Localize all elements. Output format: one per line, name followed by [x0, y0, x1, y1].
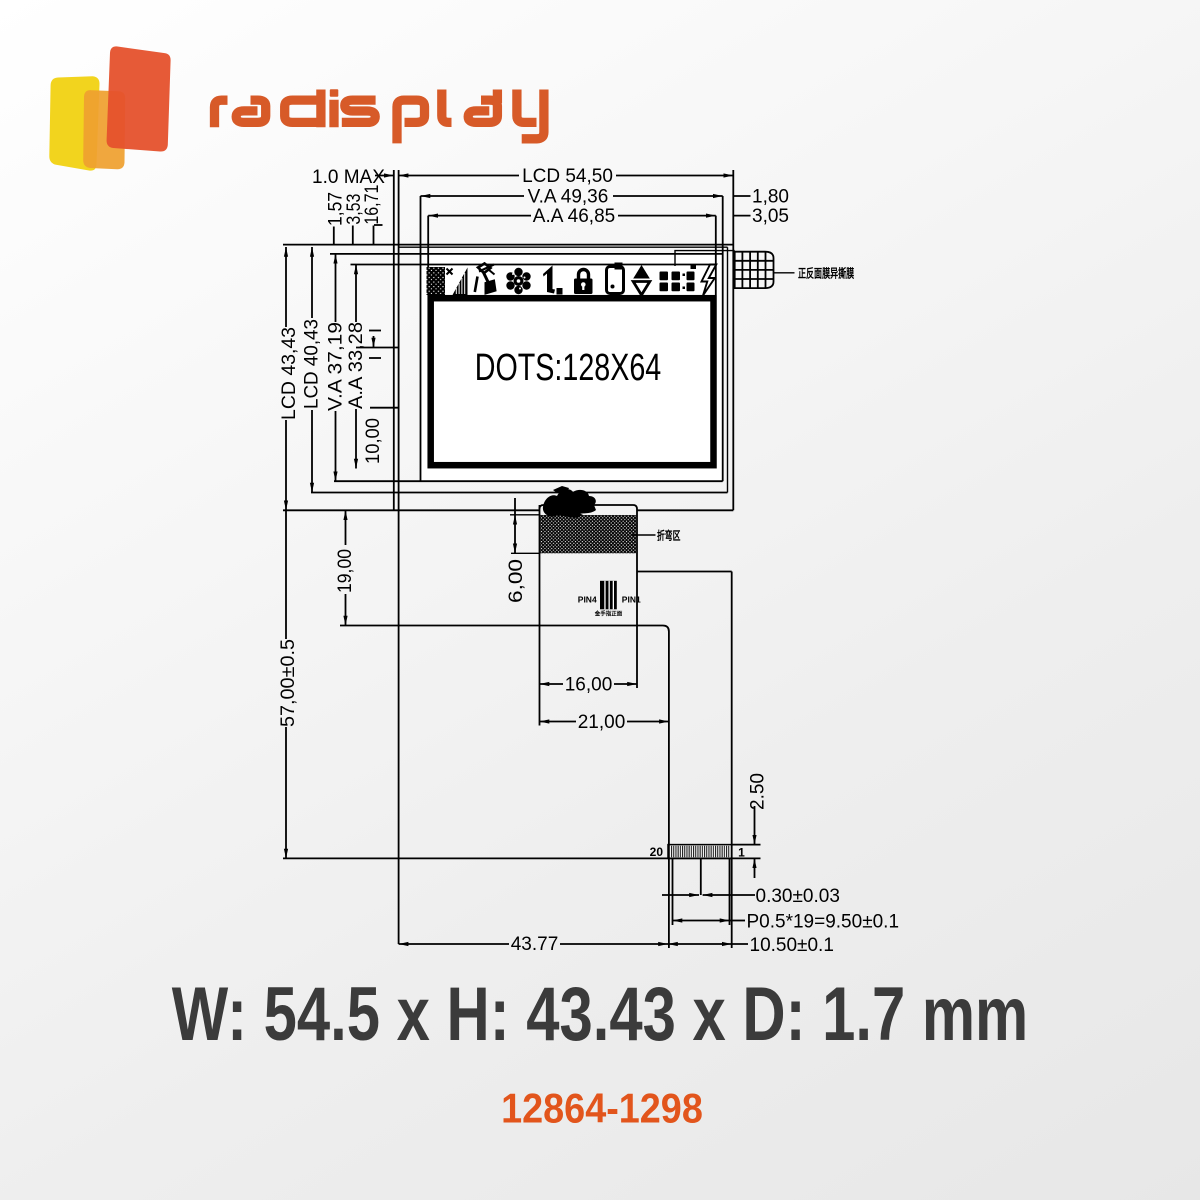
svg-text:LCD 54,50: LCD 54,50: [522, 166, 613, 187]
svg-text:LCD 40,43: LCD 40,43: [302, 319, 323, 409]
svg-text:V.A 49,36: V.A 49,36: [528, 187, 609, 208]
svg-text:P0.5*19=9.50±0.1: P0.5*19=9.50±0.1: [747, 912, 900, 933]
svg-text:3,05: 3,05: [752, 206, 789, 227]
svg-text:21,00: 21,00: [578, 712, 626, 733]
svg-text:10.50±0.1: 10.50±0.1: [750, 935, 834, 956]
svg-text:金手指正面: 金手指正面: [594, 610, 623, 618]
svg-text:折弯区: 折弯区: [657, 528, 681, 543]
svg-text:16,71: 16,71: [362, 185, 383, 225]
svg-text:LCD 43,43: LCD 43,43: [279, 327, 300, 420]
svg-text:A.A 33,28: A.A 33,28: [346, 322, 367, 409]
svg-text:1,57: 1,57: [325, 192, 346, 226]
svg-text:正反面膜异撕膜: 正反面膜异撕膜: [798, 266, 855, 281]
svg-text:0.30±0.03: 0.30±0.03: [756, 886, 840, 907]
svg-text:PIN4: PIN4: [578, 595, 597, 605]
svg-text:PIN1: PIN1: [622, 595, 641, 605]
svg-text:20: 20: [650, 845, 664, 859]
svg-text:1: 1: [738, 846, 745, 860]
svg-text:10,00: 10,00: [363, 418, 384, 464]
svg-text:3,53: 3,53: [344, 194, 365, 225]
svg-text:12864-1298: 12864-1298: [501, 1086, 703, 1132]
svg-text:19,00: 19,00: [335, 549, 356, 593]
svg-text:1,80: 1,80: [752, 187, 789, 208]
svg-text:2.50: 2.50: [748, 773, 769, 810]
svg-text:57,00±0.5: 57,00±0.5: [278, 639, 299, 727]
svg-text:W: 54.5 x H: 43.43 x D: 1.7 mm: W: 54.5 x H: 43.43 x D: 1.7 mm: [172, 972, 1028, 1056]
svg-text:16,00: 16,00: [565, 675, 613, 696]
svg-text:DOTS:128X64: DOTS:128X64: [475, 347, 662, 389]
svg-text:A.A 46,85: A.A 46,85: [533, 206, 615, 227]
svg-text:6,00: 6,00: [506, 559, 527, 603]
svg-text:V.A 37,19: V.A 37,19: [326, 322, 347, 411]
svg-text:43.77: 43.77: [511, 934, 559, 955]
